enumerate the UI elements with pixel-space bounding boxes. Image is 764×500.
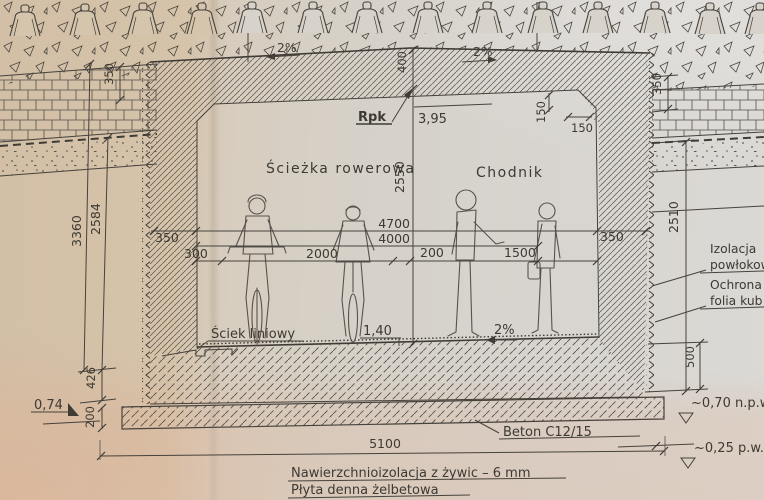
protection-label-line2: folia kub <box>710 294 763 308</box>
dim-pavement-right: 350 <box>650 73 664 95</box>
floor-slab-hatch <box>150 338 644 404</box>
water-level-upper-label: ~0,70 n.p.w <box>691 396 764 411</box>
dim-interior-height: 2550 <box>392 161 407 193</box>
cyclist-rear <box>333 206 374 342</box>
dim-wall-depth-right: 2510 <box>666 201 681 233</box>
cross-section-drawing: 2% 2% <box>0 0 764 500</box>
dim-walkway: 1500 <box>504 245 536 260</box>
pedestrian-with-bag <box>528 203 560 333</box>
water-level-lower-label: ~0,25 p.w.g <box>694 441 764 456</box>
slope-label: 2% <box>277 41 297 55</box>
level-marker-icon <box>679 413 693 423</box>
sidewalk-label: Chodnik <box>476 165 543 181</box>
benchmark-label: Rpk <box>358 110 386 125</box>
level-marker-icon <box>681 458 695 468</box>
bottom-slab-callout: Płyta denna żelbetowa <box>288 483 470 498</box>
dim-base-left: 426 <box>84 367 98 389</box>
wall-protection-callout: Ochrona folia kub <box>655 278 764 322</box>
protection-label-line1: Ochrona <box>710 278 762 292</box>
horizontal-dimensions: 4700 4000 300 2000 200 1500 350 350 <box>150 216 650 265</box>
dim-wall-right: 350 <box>600 229 624 244</box>
water-level-upper: ~0,70 n.p.w <box>679 396 764 423</box>
linear-drain-label: Ściek liniowy <box>211 326 295 342</box>
cyclist-front <box>228 195 286 344</box>
dim-wall-left: 350 <box>155 230 179 245</box>
insulation-label-line1: Izolacja <box>710 242 756 256</box>
benchmark-level: 3,95 <box>418 112 447 127</box>
floor-slope-label: 2% <box>494 323 515 338</box>
waterproofing-zigzag-left <box>142 62 150 404</box>
foundation-concrete-callout: Beton C12/15 <box>475 420 640 440</box>
dim-chamfer-v: 150 <box>534 101 548 123</box>
dim-height-total-left: 3360 <box>69 215 84 247</box>
pedestrian-adult <box>448 190 504 336</box>
bottom-annotations: Beton C12/15 5100 Nawierzchnioizolacja z… <box>97 420 668 498</box>
dim-opening-width: 4700 <box>378 216 410 231</box>
dim-foundation-width: 5100 <box>369 436 401 451</box>
dim-clear-width: 4000 <box>378 231 410 246</box>
dim-gap-mid: 200 <box>420 245 444 260</box>
dim-bike-lane: 2000 <box>306 246 338 261</box>
left-pavement-layers <box>0 64 157 176</box>
figures <box>228 190 560 344</box>
scanned-drawing: 2% 2% <box>0 0 764 500</box>
dim-foundation-thickness: 200 <box>83 406 97 428</box>
datum-flag-icon <box>68 403 79 416</box>
waterproofing-zigzag-right <box>646 53 654 392</box>
dim-ceiling-above: 400 <box>395 51 409 73</box>
insulation-label-line2: powłokow <box>710 258 764 272</box>
dim-pavement-left: 350 <box>102 63 116 85</box>
dim-offset-left: 300 <box>184 246 208 261</box>
surface-insulation-callout: Nawierzchnioizolacja z żywic – 6 mm <box>288 466 566 481</box>
water-level-lower: ~0,25 p.w.g <box>618 441 764 468</box>
right-pavement-layers <box>652 84 764 212</box>
dim-chamfer-h: 150 <box>571 121 593 135</box>
dim-height-inner-left: 2584 <box>88 203 103 235</box>
datum-left-label: 0,74 <box>34 398 63 413</box>
drain-level-label: 1,40 <box>363 324 392 339</box>
dim-foundation-drop: 500 <box>683 346 697 368</box>
